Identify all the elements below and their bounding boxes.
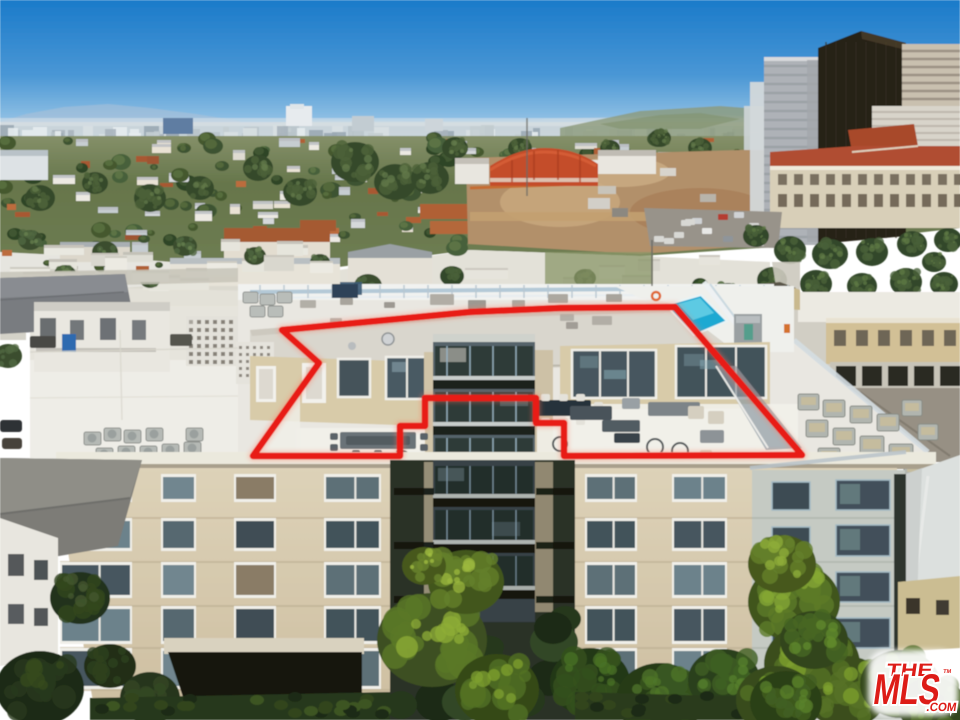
svg-text:TM: TM [943, 669, 952, 675]
svg-text:.COM: .COM [926, 700, 958, 714]
